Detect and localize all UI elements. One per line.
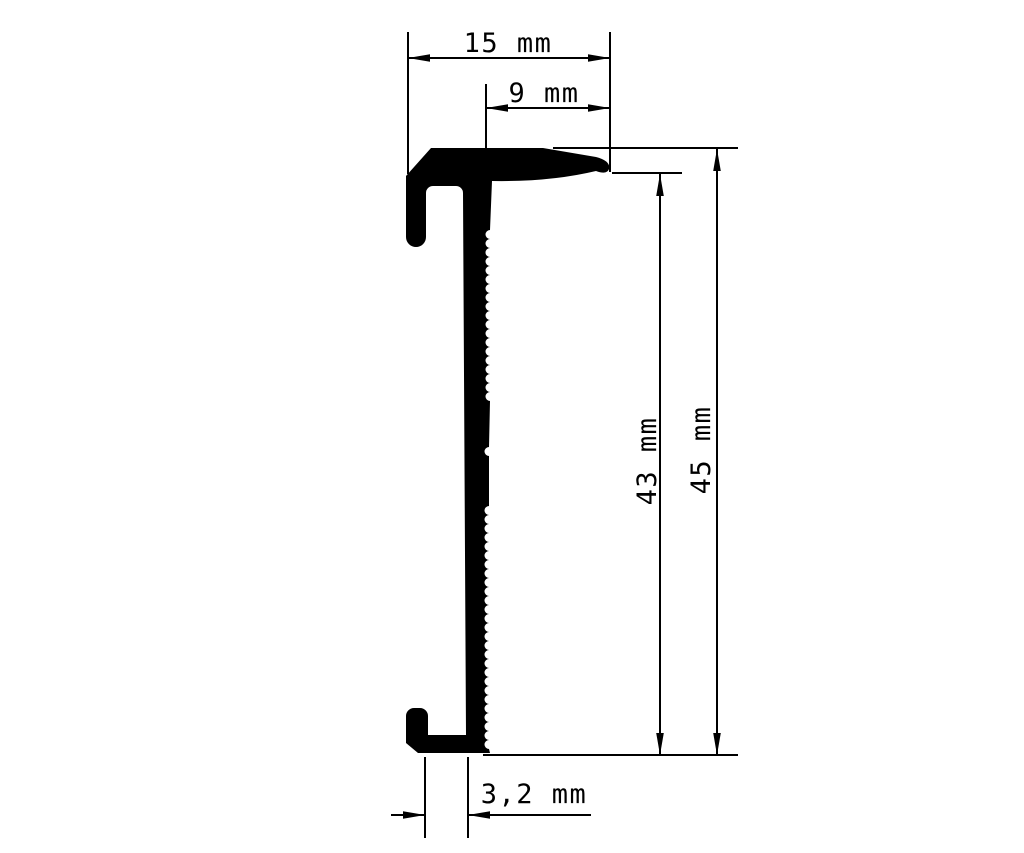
arrow-32mm-right	[468, 811, 490, 819]
arrow-32mm-left	[403, 811, 425, 819]
dim-label-slot-width: 3,2 mm	[481, 779, 588, 810]
arrow-15mm-right	[588, 54, 610, 62]
dim-label-inner-height: 43 mm	[632, 417, 663, 506]
dimension-labels: 15 mm 9 mm 43 mm 45 mm 3,2 mm	[464, 28, 717, 810]
dim-label-top-width: 15 mm	[464, 28, 553, 59]
arrow-15mm-left	[408, 54, 430, 62]
dim-label-nose-width: 9 mm	[508, 78, 579, 109]
arrow-9mm-right	[588, 104, 610, 112]
arrow-45mm-bottom	[713, 733, 721, 755]
arrow-43mm-bottom	[656, 733, 664, 755]
technical-drawing: 15 mm 9 mm 43 mm 45 mm 3,2 mm	[0, 0, 1024, 853]
drawing-canvas: 15 mm 9 mm 43 mm 45 mm 3,2 mm	[0, 0, 1024, 853]
arrow-45mm-top	[713, 149, 721, 171]
arrow-43mm-top	[656, 174, 664, 196]
profile-outline	[406, 148, 609, 753]
dim-label-total-height: 45 mm	[686, 406, 717, 495]
arrow-9mm-left	[486, 104, 508, 112]
